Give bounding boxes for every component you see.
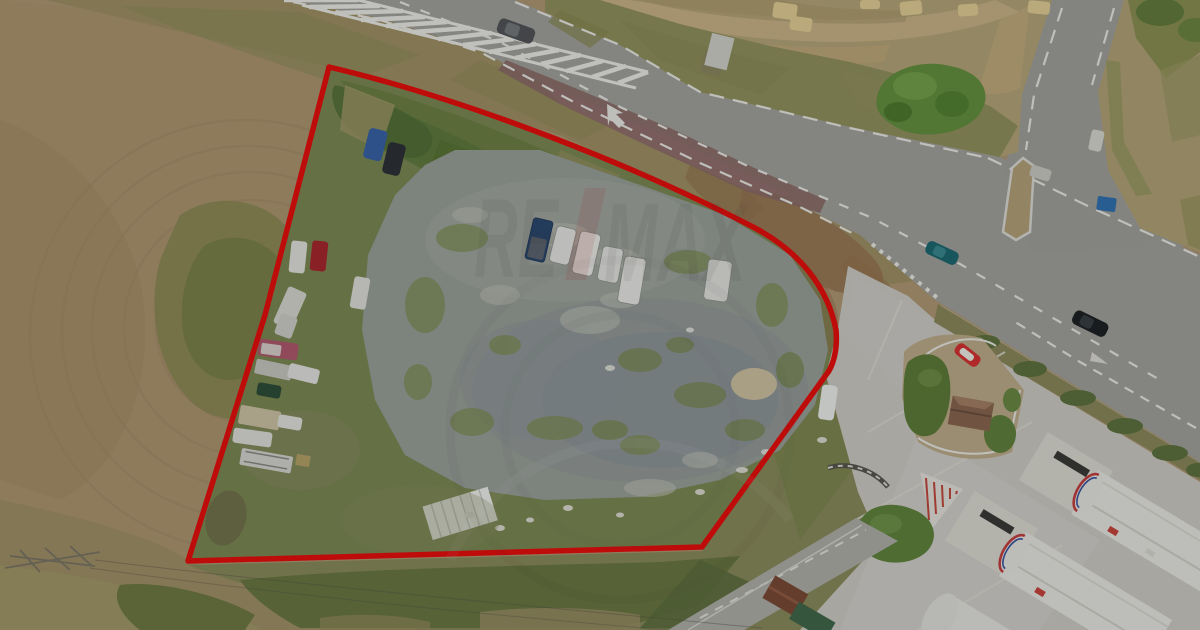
svg-text:MAX: MAX [604, 180, 750, 305]
svg-text:RE: RE [474, 176, 560, 301]
